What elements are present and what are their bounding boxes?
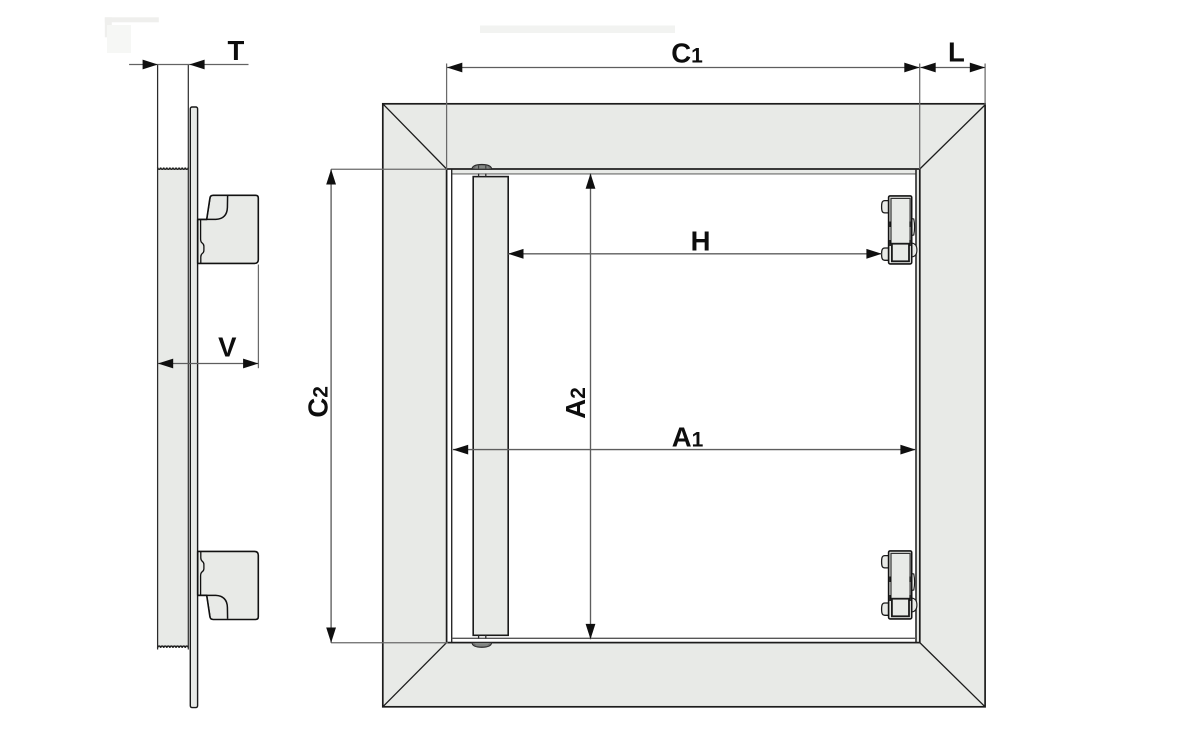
svg-text:T: T	[227, 35, 244, 66]
svg-text:V: V	[218, 331, 237, 362]
svg-text:C2: C2	[303, 386, 334, 418]
svg-text:L: L	[948, 37, 965, 68]
svg-text:C1: C1	[671, 38, 703, 69]
svg-text:H: H	[691, 226, 711, 257]
